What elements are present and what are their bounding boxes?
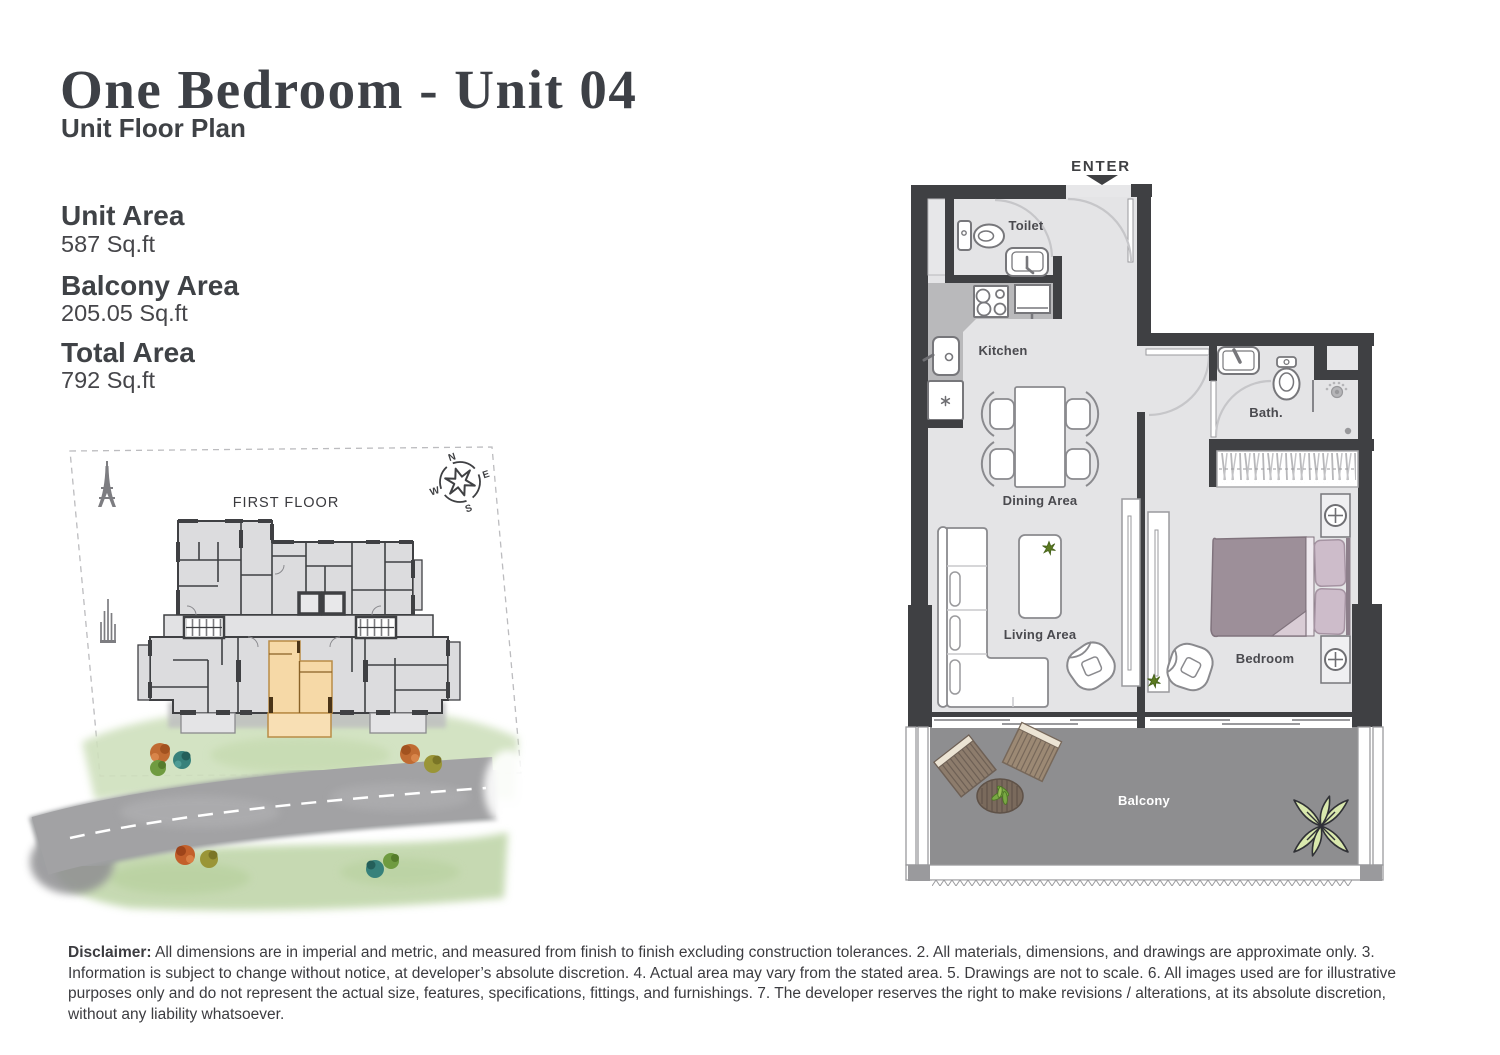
svg-text:Kitchen: Kitchen — [978, 343, 1027, 358]
svg-text:E: E — [481, 469, 491, 482]
svg-text:Living Area: Living Area — [1004, 627, 1077, 642]
svg-text:FIRST FLOOR: FIRST FLOOR — [233, 495, 340, 511]
svg-text:ENTER: ENTER — [1071, 158, 1131, 175]
svg-text:Dining Area: Dining Area — [1003, 493, 1078, 508]
svg-text:Balcony: Balcony — [1118, 793, 1171, 808]
svg-text:N: N — [447, 451, 457, 464]
svg-text:Toilet: Toilet — [1009, 218, 1044, 233]
svg-text:Bath.: Bath. — [1249, 405, 1283, 420]
svg-text:S: S — [464, 503, 474, 516]
svg-text:W: W — [429, 485, 442, 499]
svg-text:Bedroom: Bedroom — [1236, 651, 1294, 666]
